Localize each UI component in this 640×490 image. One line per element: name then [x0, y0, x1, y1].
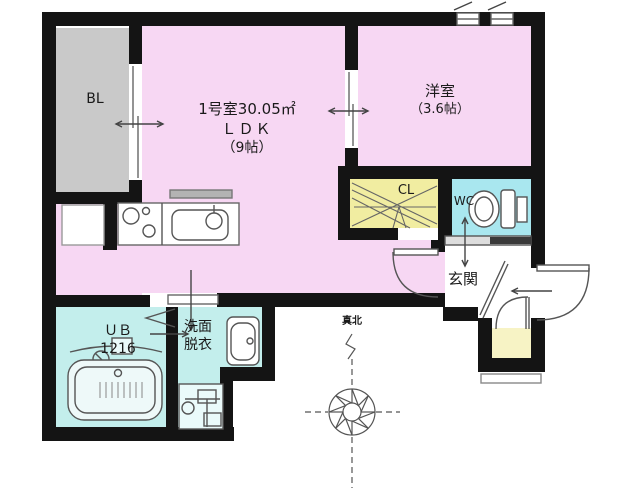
door-opening — [150, 295, 178, 307]
entrance-door — [532, 265, 589, 320]
ldk-room-number: 1号室30.05㎡ — [147, 100, 347, 120]
wall — [42, 12, 545, 26]
compass-label: 真北 — [332, 315, 372, 328]
washroom-floor-nook — [178, 370, 220, 427]
closet-label: CL — [388, 183, 424, 200]
floor-plan: BL 1号室30.05㎡ ＬＤＫ （9帖） 洋室 （3.6帖） CL WC 玄関… — [0, 0, 640, 490]
ldk-floor-east — [345, 240, 445, 293]
balcony-label: BL — [60, 90, 130, 108]
washroom-label: 洗面 脱衣 — [172, 318, 224, 354]
wall — [103, 192, 117, 250]
wall — [42, 192, 142, 204]
kitchen-floor — [56, 204, 142, 295]
ldk-size: （9帖） — [147, 139, 347, 157]
wall — [431, 240, 445, 252]
wall — [345, 26, 358, 70]
wall — [531, 12, 545, 268]
wall — [217, 293, 445, 307]
unit-bath-label: ＵＢ 1216 — [88, 322, 148, 358]
balcony-floor — [56, 28, 129, 192]
exterior-step — [481, 374, 541, 383]
shoe-storage — [492, 328, 531, 358]
wall — [42, 427, 234, 441]
wall — [443, 307, 478, 321]
door-opening — [398, 228, 438, 240]
compass-rose — [305, 334, 400, 488]
wall — [478, 358, 545, 372]
ldk-floor — [142, 26, 345, 293]
ldk-type: ＬＤＫ — [147, 120, 347, 140]
ldk-label: 1号室30.05㎡ ＬＤＫ （9帖） — [147, 100, 347, 157]
wall — [129, 26, 142, 66]
western-room-label: 洋室 （3.6帖） — [380, 82, 500, 118]
wall — [129, 178, 142, 192]
toilet-label: WC — [447, 194, 481, 210]
wall — [220, 367, 275, 381]
wall — [42, 12, 56, 441]
entrance-label: 玄関 — [436, 270, 490, 290]
